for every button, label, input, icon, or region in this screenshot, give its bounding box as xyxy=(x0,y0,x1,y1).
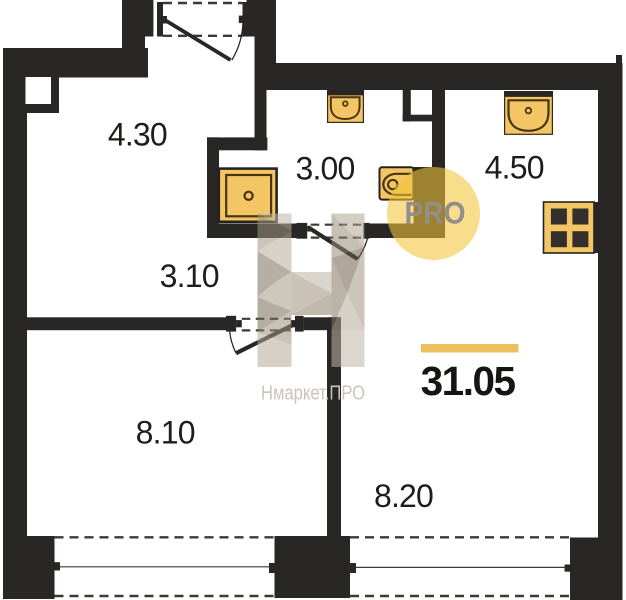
svg-text:3.00: 3.00 xyxy=(295,151,354,187)
svg-text:3.10: 3.10 xyxy=(160,258,219,294)
svg-text:4.50: 4.50 xyxy=(485,149,544,185)
svg-text:PRO: PRO xyxy=(405,194,466,230)
svg-text:8.10: 8.10 xyxy=(136,415,195,451)
svg-text:8.20: 8.20 xyxy=(374,478,433,514)
svg-text:31.05: 31.05 xyxy=(421,358,516,404)
svg-text:4.30: 4.30 xyxy=(108,116,167,152)
svg-text:Нмаркет.ПРО: Нмаркет.ПРО xyxy=(261,383,365,405)
